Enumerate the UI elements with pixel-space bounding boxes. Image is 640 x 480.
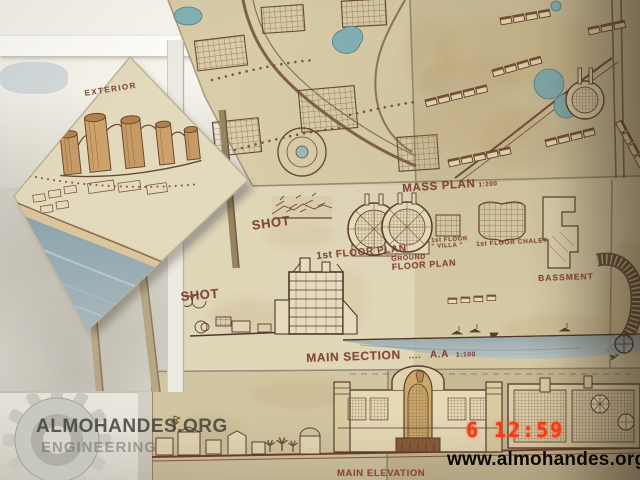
- mass-plan-scale: 1:200: [478, 180, 498, 188]
- label-shot-lower: SHOT: [180, 287, 220, 304]
- website-url: www.almohandes.org: [447, 449, 640, 471]
- main-section-dots: ....: [408, 350, 421, 360]
- label-first-floor-villa: 1st FLOOR" VILLA ": [431, 236, 468, 250]
- photo-scene: EXTERIOR SHOT SHOT MASS PLAN1:200 1st FL…: [0, 0, 640, 480]
- main-section-ref: A.A: [430, 349, 449, 361]
- watermark-line2-text: ENGINEERING: [41, 439, 157, 456]
- main-section-scale: 1:100: [456, 351, 476, 359]
- villa-plan: [436, 215, 460, 236]
- label-basement: BASSMENT: [538, 272, 594, 283]
- main-elevation-text: MAIN ELEVATION: [337, 468, 425, 479]
- timestamp-text: 6 12:59: [466, 418, 564, 442]
- camera-timestamp: 6 12:59: [466, 418, 564, 442]
- basement-text: BASSMENT: [538, 271, 594, 283]
- watermark-subtitle: ENGINEERING: [41, 439, 157, 456]
- main-section-text: MAIN SECTION: [306, 348, 401, 365]
- wall-shadow-right: [556, 0, 640, 480]
- website-text: www.almohandes.org: [447, 449, 640, 470]
- chalet-plan: [479, 202, 525, 242]
- watermark-line1-text: ALMOHANDES.ORG: [36, 416, 228, 437]
- watermark-site-name: ALMOHANDES.ORG: [36, 416, 228, 438]
- label-main-elevation: MAIN ELEVATION: [337, 469, 425, 479]
